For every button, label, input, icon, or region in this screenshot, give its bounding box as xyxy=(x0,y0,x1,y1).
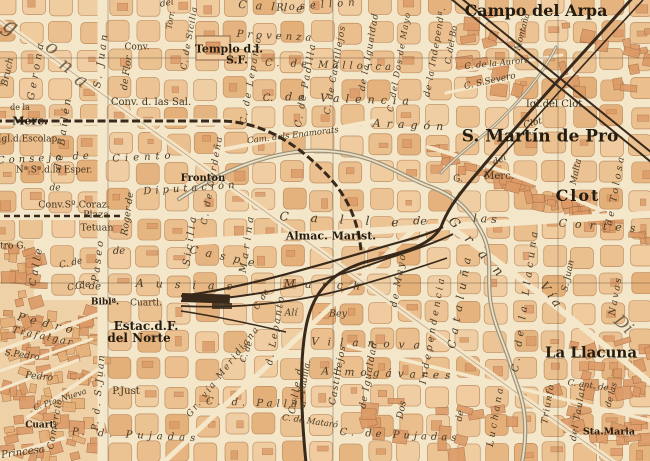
city-map-canvas: CalledelRosellonCampo del ArpaConv.Templ… xyxy=(0,0,650,461)
map-scenery xyxy=(0,0,650,461)
